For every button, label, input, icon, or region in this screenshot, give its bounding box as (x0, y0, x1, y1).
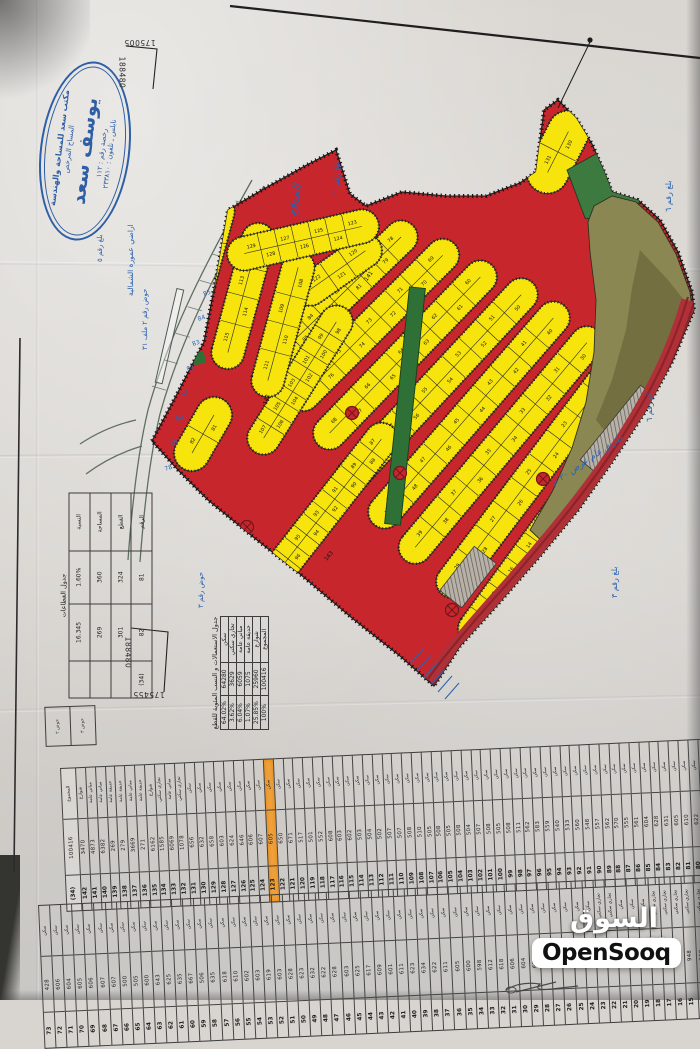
parcel-use: حديقة عامة (118, 780, 124, 802)
parcel-number: 130 (201, 881, 208, 893)
parcel-number: 101 (488, 868, 495, 880)
parcel-area: 631 (664, 814, 671, 825)
parcel-use: حديقة عامة (138, 779, 144, 801)
parcel-area: 625 (355, 964, 362, 975)
parcel-use: سكن (65, 925, 70, 935)
parcel-area: 504 (367, 828, 374, 839)
parcel-area: 623 (299, 967, 306, 978)
parcel-area: 6069 (170, 835, 177, 850)
parcel-area: 605 (268, 832, 275, 843)
parcel-number: 46 (346, 1012, 352, 1020)
parcel-area: 609 (377, 963, 384, 974)
parcel-use: سكن (364, 911, 369, 921)
sector-table-title: جدول القطاعات (60, 493, 68, 699)
parcel-number: 33 (490, 1006, 496, 1014)
parcel-number: 37 (446, 1008, 452, 1016)
parcel-use: سكن (306, 778, 311, 788)
parcel-use: سكن (227, 781, 232, 791)
junction-symbol (537, 473, 550, 486)
block-3-note: بلغ رقم ٣ (610, 566, 619, 598)
parcel-area: 604 (521, 957, 528, 968)
parcel-area: 559 (545, 820, 552, 831)
parcel-use: سكن (286, 915, 291, 925)
parcel-use: سكن (508, 905, 513, 915)
parcel-area: 650 (278, 832, 285, 843)
parcel-area: 610 (233, 970, 240, 981)
usage-table-cell: 1075 (245, 662, 253, 696)
parcel-use: سكن (464, 907, 469, 917)
parcel-number: 55 (246, 1017, 252, 1025)
parcel-number: 110 (399, 872, 406, 884)
parcel-number: 62 (168, 1020, 174, 1028)
parcel-use: سكن (175, 920, 180, 930)
parcel-number: 99 (508, 869, 514, 877)
parcel-use: سكن (474, 770, 479, 780)
parcel-number: 121 (290, 877, 297, 889)
parcel-use: سكن (296, 778, 301, 788)
parcel-area: 643 (155, 973, 162, 984)
parcel-number: 89 (606, 864, 612, 872)
parcel-area: 3470 (81, 839, 88, 854)
parcel-use: سكن (504, 769, 509, 779)
parcel-number: 42 (390, 1010, 396, 1018)
parcel-number: 72 (58, 1025, 64, 1033)
parcel-use: سكن (425, 772, 430, 782)
parcel-number: 29 (534, 1004, 540, 1012)
parcel-use: سكن (415, 773, 420, 783)
parcel-number: 15 (689, 997, 695, 1005)
parcel-use: سكن (253, 916, 258, 926)
parcel-number: 49 (313, 1014, 319, 1022)
parcel-number: 25 (579, 1002, 585, 1010)
parcel-area: 583 (535, 820, 542, 831)
sector-table-cell (111, 661, 132, 698)
parcel-area: 508 (486, 822, 493, 833)
parcel-use: سكن (187, 919, 192, 929)
usage-table-cell: شوارع (253, 617, 261, 663)
parcel-use: سكن (486, 906, 491, 916)
usage-table-cell: تجاري سكني (229, 617, 237, 663)
parcel-number: 63 (157, 1021, 163, 1029)
parcel-area: 602 (244, 969, 251, 980)
parcel-area: 628 (654, 815, 661, 826)
parcel-number: 117 (330, 875, 337, 887)
parcel-number: 24 (590, 1001, 596, 1009)
parcel-use: سكن (187, 783, 192, 793)
parcel-number: 85 (646, 863, 652, 871)
parcel-number: 58 (213, 1018, 219, 1026)
usage-table-cell: 25960 (253, 662, 261, 696)
parcel-number: 67 (113, 1023, 119, 1031)
usage-table-cell: 1.07% (245, 696, 253, 730)
basin-3-note: حوض رقم ٣ (197, 572, 205, 608)
parcel-number: 69 (91, 1024, 97, 1032)
area-name-note: اراضي عمورة الشمالية (126, 224, 135, 296)
parcel-use: سكن (385, 774, 390, 784)
parcel-area: 625 (166, 973, 173, 984)
parcel-use: سكن (553, 766, 558, 776)
parcel-use: سكن (375, 911, 380, 921)
parcel-use: سكن (622, 763, 627, 773)
parcel-area: 560 (575, 818, 582, 829)
parcel-number: 57 (224, 1018, 230, 1026)
parcel-area: 603 (338, 829, 345, 840)
parcel-number: 120 (300, 876, 307, 888)
parcel-number: 95 (547, 867, 553, 875)
benchmark-pole (558, 42, 590, 108)
parcel-use: سكن (672, 761, 677, 771)
parcel-area: 269 (110, 839, 117, 850)
parcel-number: 51 (290, 1015, 296, 1023)
parcel-number: 119 (310, 876, 317, 888)
junction-flare (86, 446, 142, 474)
parcel-use: سكن (475, 906, 480, 916)
parcel-use: سكن (444, 771, 449, 781)
parcel-number: 81 (686, 861, 692, 869)
parcel-number: 112 (379, 873, 386, 885)
parcel-use: سكن (326, 777, 331, 787)
parcel-use: سكن (355, 775, 360, 785)
parcel-area: 562 (604, 817, 611, 828)
parcel-use: سكن (652, 762, 657, 772)
parcel-number: 129 (211, 880, 218, 892)
sector-table-cell (90, 661, 111, 698)
parcel-area: 612 (488, 958, 495, 969)
parcel-number: 19 (645, 999, 651, 1007)
parcel-area: 628 (333, 965, 340, 976)
parcel-number: 93 (567, 866, 573, 874)
parcel-use: سكن (642, 762, 647, 772)
parcel-area: 548 (585, 818, 592, 829)
parcel-area: 504 (466, 823, 473, 834)
block-5-note: بلغ رقم ٥ (96, 234, 104, 262)
parcel-use: مباني عامة (98, 782, 104, 803)
parcel-area: 607 (111, 975, 118, 986)
parcel-number: 84 (656, 862, 662, 870)
parcel-area: 561 (634, 816, 641, 827)
parcel-number: 92 (577, 866, 583, 874)
parcel-use: سكن (276, 779, 281, 789)
parcel-number: 127 (231, 880, 238, 892)
parcel-use: سكن (573, 766, 578, 776)
parcel-area: 6382 (100, 838, 107, 853)
parcel-use: سكن (441, 908, 446, 918)
parcel-number: 124 (261, 878, 268, 890)
parcel-use: شوارع (148, 784, 154, 797)
parcel-area: 507 (387, 827, 394, 838)
parcel-number: 126 (241, 879, 248, 891)
edge-parcel-number: 78 (164, 464, 174, 473)
sector-table-cell: 82 (131, 604, 152, 662)
parcel-use: سكن (494, 769, 499, 779)
parcel-area: 508 (436, 825, 443, 836)
parcel-number: 64 (146, 1021, 152, 1029)
parcel-number: 71 (69, 1025, 75, 1033)
parcel-number: 65 (135, 1022, 141, 1030)
parcel-use: سكن (365, 775, 370, 785)
parcel-number: 125 (251, 879, 258, 891)
parcel-area: 618 (499, 958, 506, 969)
parcel-use: سكن (397, 910, 402, 920)
parcel-number: 56 (235, 1017, 241, 1025)
parcel-number: 16 (678, 997, 684, 1005)
parcel-use: سكن (331, 913, 336, 923)
parcel-area: 634 (421, 961, 428, 972)
parcel-area: 606 (55, 978, 62, 989)
parcel-use: سكن (514, 768, 519, 778)
parcel-area: 279 (120, 839, 127, 850)
usage-table-cell: المجموع (261, 617, 269, 663)
junction-symbol (241, 521, 254, 534)
parcel-use: سكن (523, 768, 528, 778)
parcel-area: 605 (454, 960, 461, 971)
parcel-use: سكن (264, 916, 269, 926)
sector-table-cell: (34) (131, 661, 152, 698)
parcel-number: 106 (438, 870, 445, 882)
legend-note-box: حوض ٢ حوض ٣ (44, 705, 96, 747)
parcel-use: سكن (286, 779, 291, 789)
parcel-area: 628 (288, 967, 295, 978)
parcel-number: 26 (567, 1002, 573, 1010)
edge-parcel-number: 83 (191, 339, 201, 348)
opensooq-logo: OpenSooq (532, 938, 681, 968)
parcel-area: 502 (377, 827, 384, 838)
basin-2-note: حوض رقم ٢ ملف ٣١ (141, 289, 149, 350)
parcel-use: سكن (346, 776, 351, 786)
parcel-area: 508 (407, 826, 414, 837)
parcel-number: 138 (122, 884, 129, 896)
parcel-number: 54 (257, 1016, 263, 1024)
parcel-number: 66 (124, 1022, 130, 1030)
parcel-area: 671 (288, 831, 295, 842)
parcel-area: 552 (318, 830, 325, 841)
usage-table-cell: 25.85% (253, 696, 261, 730)
parcel-use: سكن (209, 918, 214, 928)
parcel-number: 31 (512, 1005, 518, 1013)
parcel-number: 131 (191, 881, 198, 893)
parcel-area: 505 (496, 822, 503, 833)
parcel-number: 137 (132, 884, 139, 896)
parcel-use: سكن (164, 920, 169, 930)
parcel-use: سكن (342, 912, 347, 922)
parcel-use: سكن (231, 917, 236, 927)
sector-table-cell: 81 (131, 551, 152, 604)
parcel-number: 41 (401, 1010, 407, 1018)
parcel-use: سكن (76, 924, 81, 934)
parcel-number: 134 (162, 883, 169, 895)
usage-table-cell: 6.04% (237, 696, 245, 730)
parcel-area: 646 (239, 834, 246, 845)
parcel-area: 1585 (160, 835, 167, 850)
parcel-area: 606 (510, 957, 517, 968)
parcel-area: 562 (525, 821, 532, 832)
sector-table: جدول القطاعات النسبة1.60%16.345المساحة36… (60, 493, 153, 699)
parcel-use: سكن (197, 783, 202, 793)
parcel-area: 505 (446, 824, 453, 835)
parcel-area: 658 (209, 835, 216, 846)
usage-table-cell: سكن (221, 617, 229, 663)
parcel-area: 271 (140, 838, 147, 849)
block-2-note: بلغ رقم ٢ (332, 161, 341, 193)
parcel-number: 104 (458, 869, 465, 881)
parcel-area: 611 (399, 962, 406, 973)
parcel-number: 132 (182, 882, 189, 894)
parcel-area: 508 (456, 824, 463, 835)
parcel-use: سكن (583, 765, 588, 775)
parcel-number: 87 (626, 864, 632, 872)
parcel-number: 45 (357, 1012, 363, 1020)
parcel-area: 555 (624, 816, 631, 827)
parcel-use: سكن (602, 764, 607, 774)
parcel-number: 83 (666, 862, 672, 870)
parcel-area: 4873 (90, 838, 97, 853)
parcel-number: 122 (280, 877, 287, 889)
parcel-area: 500 (122, 975, 129, 986)
parcel-area: 604 (67, 977, 74, 988)
parcel-area: 606 (249, 833, 256, 844)
parcel-area: 506 (200, 971, 207, 982)
parcel-area: 6162 (150, 836, 157, 851)
parcel-area: 508 (506, 821, 513, 832)
parcel-use: سكن (419, 909, 424, 919)
parcel-number: 118 (320, 875, 327, 887)
parcel-area: 667 (188, 972, 195, 983)
sector-table-cell: المساحة (90, 493, 111, 551)
grid-coord-y-top: 188480 (117, 57, 126, 89)
junction-symbol (394, 467, 407, 480)
parcel-area: 570 (614, 817, 621, 828)
parcel-area: 600 (144, 974, 151, 985)
parcel-area: 540 (555, 819, 562, 830)
parcel-use: سكن (375, 775, 380, 785)
parcel-use: سكن (109, 923, 114, 933)
leader-tick (438, 676, 452, 692)
parcel-use: سكن (87, 924, 92, 934)
leader-tick (445, 683, 459, 699)
benchmark-point (587, 37, 592, 42)
parcel-area: 607 (259, 833, 266, 844)
junction-symbol (446, 604, 459, 617)
parcel-area: 603 (277, 968, 284, 979)
parcel-use: سكن (54, 925, 59, 935)
sector-table-cell: 301 (111, 604, 132, 662)
parcel-use: مباني عامة (167, 778, 173, 799)
parcel-number: 136 (142, 884, 149, 896)
parcel-number: 98 (518, 869, 524, 877)
parcel-area: 507 (397, 826, 404, 837)
parcel-use: سكن (257, 780, 262, 790)
parcel-number: 109 (409, 871, 416, 883)
parcel-number: 111 (389, 872, 396, 884)
parcel-area: 510 (417, 826, 424, 837)
block-6-note-a: بلغ رقم ٦ (664, 180, 673, 212)
parcel-number: 39 (423, 1009, 429, 1017)
parcel-number: 48 (324, 1013, 330, 1021)
parcel-area: 505 (426, 825, 433, 836)
parcel-use: تجاري سكني (157, 777, 163, 802)
parcel-number: 18 (656, 998, 662, 1006)
parcel-area: 622 (693, 813, 700, 824)
parcel-number: 59 (202, 1019, 208, 1027)
grid-coord-x-top: 175005 (124, 38, 156, 47)
parcel-use: سكن (320, 913, 325, 923)
parcel-use: سكن (120, 922, 125, 932)
parcel-area: 610 (683, 813, 690, 824)
parcel-number: 88 (616, 864, 622, 872)
parcel-area: 603 (344, 965, 351, 976)
edge-parcel-number: 85 (202, 289, 212, 298)
usage-table-cell: 100416 (261, 662, 269, 696)
parcel-area: 617 (366, 964, 373, 975)
sector-table-cell: 360 (90, 551, 111, 604)
parcel-number: 22 (612, 1000, 618, 1008)
parcel-number: 30 (523, 1004, 529, 1012)
parcel-use: سكن (142, 921, 147, 931)
parcel-use: شوارع (79, 787, 85, 800)
parcel-area: 607 (100, 976, 107, 987)
parcel-number: 86 (636, 863, 642, 871)
parcel-use: سكن (519, 904, 524, 914)
parcel-use: سكن (207, 782, 212, 792)
parcel-number: 108 (419, 871, 426, 883)
parcel-area: 622 (321, 966, 328, 977)
parcel-use: سكن (98, 923, 103, 933)
parcel-number: 20 (634, 999, 640, 1007)
parcel-number: 80 (695, 860, 700, 868)
usage-table-cell: حديقة عامة (245, 617, 253, 663)
parcel-number: 23 (601, 1001, 607, 1009)
parcel-use: سكن (543, 767, 548, 777)
legend-cell: حوض ٢ (45, 707, 70, 746)
parcel-number: 103 (468, 869, 475, 881)
parcel-use: سكن (533, 767, 538, 777)
parcel-number: 47 (335, 1013, 341, 1021)
parcel-area: 503 (357, 828, 364, 839)
parcel-use: حديقة عامة (108, 781, 114, 803)
sector-table-cell (69, 661, 90, 698)
junction-flare (80, 420, 136, 444)
parcel-use: سكن (308, 914, 313, 924)
parcel-use: سكن (681, 761, 686, 771)
edge-parcel-number: 84 (197, 314, 207, 323)
parcel-number: 21 (623, 1000, 629, 1008)
usage-table-cell: مباني عامة (237, 617, 245, 663)
sector-table-cell: 1.60% (69, 551, 90, 604)
parcel-area: 557 (594, 817, 601, 828)
parcel-number: 114 (359, 874, 366, 886)
block-6-note-b: بلغ رقم ٦ (645, 390, 654, 422)
parcel-area: 511 (515, 821, 522, 832)
parcel-number: 52 (279, 1015, 285, 1023)
parcel-area: 606 (89, 976, 96, 987)
sector-table-cell: 269 (90, 604, 111, 662)
usage-table-cell: 3629 (229, 662, 237, 696)
parcel-use: سكن (242, 917, 247, 927)
parcel-area: 3669 (130, 837, 137, 852)
parcel-number: 70 (80, 1024, 86, 1032)
opensooq-logo-text: OpenSooq (542, 940, 671, 966)
parcel-number: 113 (369, 873, 376, 885)
parcel-use: سكن (275, 915, 280, 925)
usage-table-cell: 3.62% (229, 696, 237, 730)
parcel-number: 68 (102, 1023, 108, 1031)
parcel-number: 44 (368, 1011, 374, 1019)
parcel-area: 598 (477, 959, 484, 970)
parcel-use: سكن (336, 776, 341, 786)
parcel-area: 517 (298, 831, 305, 842)
parcel-area: 624 (229, 834, 236, 845)
parcel-use: سكن (632, 763, 637, 773)
